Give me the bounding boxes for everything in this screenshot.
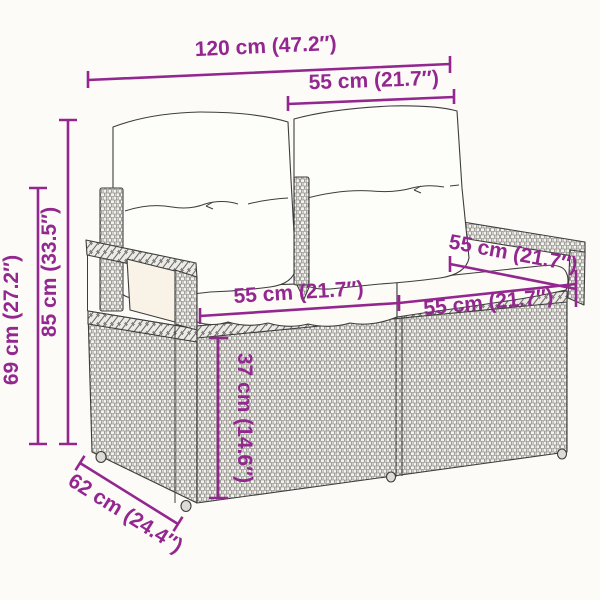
dim-back-cushion-width: 55 cm (21.7″) — [288, 67, 454, 111]
sofa-dimension-drawing: 120 cm (47.2″) 55 cm (21.7″) 85 cm (33.5… — [0, 0, 600, 600]
dim-overall-width-label: 120 cm (47.2″) — [194, 32, 337, 61]
back-cushion-right — [294, 106, 469, 289]
dim-seat-height-label: 37 cm (14.6″) — [233, 353, 256, 483]
dim-total-height: 85 cm (33.5″) — [38, 120, 77, 444]
dimension-diagram: 120 cm (47.2″) 55 cm (21.7″) 85 cm (33.5… — [0, 0, 600, 600]
dim-total-height-label: 85 cm (33.5″) — [38, 207, 61, 337]
dim-side-height-label: 69 cm (27.2″) — [0, 255, 23, 385]
dim-back-cushion-width-label: 55 cm (21.7″) — [308, 67, 439, 95]
